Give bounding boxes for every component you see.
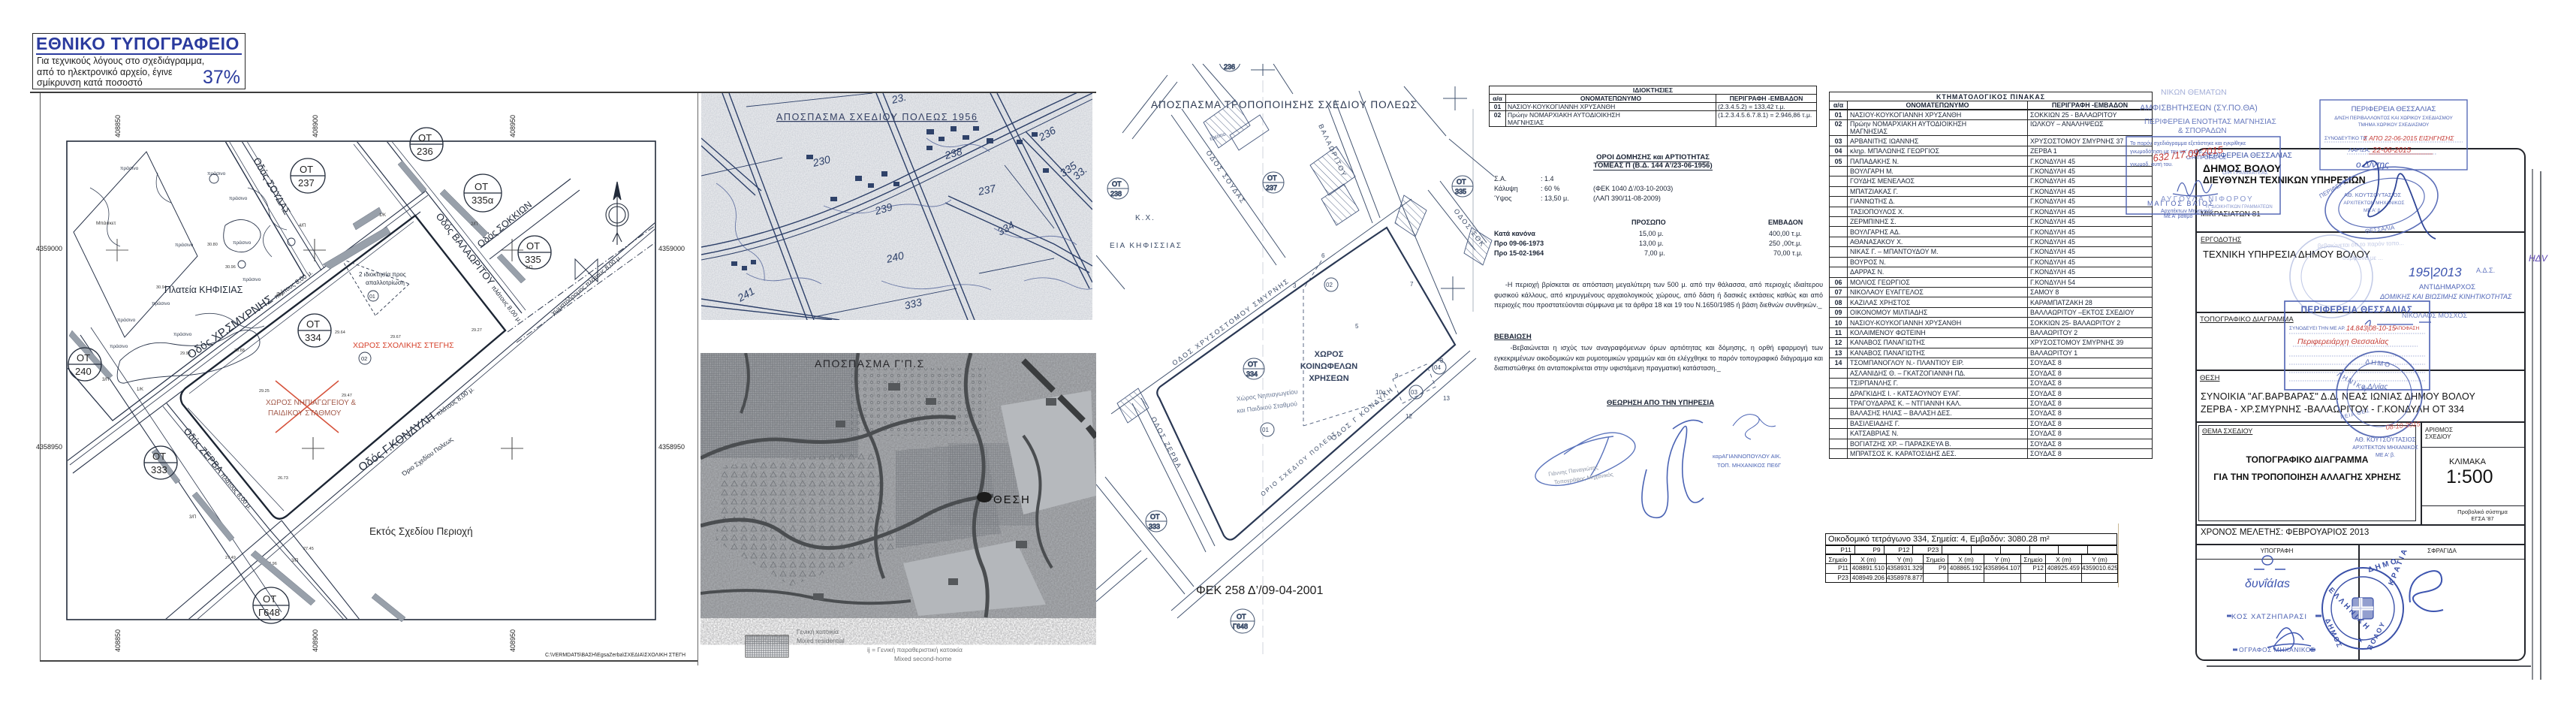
- svg-text:ΚΟΙΝΩΦΕΛΩΝ: ΚΟΙΝΩΦΕΛΩΝ: [1300, 362, 1357, 371]
- svg-text:ΘΕΣΣΑΛΙΑ: ΘΕΣΣΑΛΙΑ: [2364, 224, 2395, 235]
- svg-text:240: 240: [75, 366, 92, 377]
- svg-text:δυνΐάΙαs: δυνΐάΙαs: [2245, 578, 2290, 590]
- svg-text:ΑΥΓΟΥΛΑ ΝΙΦΟΡΟΥ: ΑΥΓΟΥΛΑ ΝΙΦΟΡΟΥ: [2161, 195, 2254, 204]
- svg-text:πράσινο: πράσινο: [152, 300, 170, 306]
- svg-text:συμφωνεί με ...: συμφωνεί με ...: [2343, 255, 2383, 261]
- svg-text:γνωμοδ. αυτή του.: γνωμοδ. αυτή του.: [2130, 162, 2173, 167]
- svg-text:ΠΑΙΔΙΚΟΥ ΣΤΑΘΜΟΥ: ΠΑΙΔΙΚΟΥ ΣΤΑΘΜΟΥ: [268, 409, 342, 418]
- svg-text:ΧΡΗΣΕΩΝ: ΧΡΗΣΕΩΝ: [1309, 374, 1348, 383]
- svg-text:195|2013: 195|2013: [2409, 265, 2462, 279]
- svg-text:ΛΑΡΙΣΑ,: ΛΑΡΙΣΑ,: [2349, 146, 2370, 153]
- svg-text:4359000: 4359000: [658, 245, 685, 252]
- svg-text:ΔΟΜΙΚΗΣ ΚΑΙ ΒΙΩΣΙΜΗΣ ΚΙΝΗΤΙΚΟΤ: ΔΟΜΙΚΗΣ ΚΑΙ ΒΙΩΣΙΜΗΣ ΚΙΝΗΤΙΚΟΤΗΤΑΣ: [2379, 293, 2512, 300]
- svg-text:ΑΠΟΣΠΑΣΜΑ ΣΧΕΔΙΟΥ ΠΟΛΕΩΣ 195: ΑΠΟΣΠΑΣΜΑ ΣΧΕΔΙΟΥ ΠΟΛΕΩΣ 1956: [776, 112, 978, 122]
- svg-text:29.27: 29.27: [472, 328, 482, 333]
- svg-text:πράσινο: πράσινο: [120, 165, 139, 171]
- svg-text:ΝΙΚΩΝ ΘΕΜΑΤΩΝ: ΝΙΚΩΝ ΘΕΜΑΤΩΝ: [2161, 88, 2227, 97]
- svg-text:3/Π: 3/Π: [291, 559, 298, 563]
- svg-text:πράσινο: πράσινο: [229, 195, 248, 201]
- svg-text:02: 02: [1326, 282, 1333, 288]
- svg-text:1/Κ: 1/Κ: [137, 388, 143, 392]
- svg-text:Γενική κατοικία: Γενική κατοικία: [797, 628, 839, 635]
- svg-text:Μπάσκετ: Μπάσκετ: [96, 220, 116, 226]
- svg-text:ΑΠΟΣΠΑΣΜΑ ΤΡΟΠΟΠΟΙΗΣΗΣ ΣΧΕΔΙΟΥ: ΑΠΟΣΠΑΣΜΑ ΤΡΟΠΟΠΟΙΗΣΗΣ ΣΧΕΔΙΟΥ ΠΟΛΕΩΣ: [1151, 99, 1418, 110]
- svg-text:ΤΜΗΜΑ ΧΩΡΙΚΟΥ ΣΧΕΔΙΑΣΜΟΥ: ΤΜΗΜΑ ΧΩΡΙΚΟΥ ΣΧΕΔΙΑΣΜΟΥ: [2358, 122, 2430, 128]
- svg-text:333: 333: [151, 464, 167, 475]
- svg-text:Εκτός Σχεδίου Περιοχή: Εκτός Σχεδίου Περιοχή: [369, 526, 473, 537]
- svg-text:333: 333: [1149, 523, 1160, 530]
- svg-text:ΑΝΤΙΔΗΜΑΡΧΟΣ: ΑΝΤΙΔΗΜΑΡΧΟΣ: [2419, 283, 2475, 291]
- svg-text:334: 334: [1246, 370, 1258, 378]
- svg-text:ΧΩΡΟΣ ΣΧΟΛΙΚΗΣ ΣΤΕΓΗΣ: ΧΩΡΟΣ ΣΧΟΛΙΚΗΣ ΣΤΕΓΗΣ: [353, 341, 454, 350]
- svg-text:ΤΟΠ. ΜΗΧΑΝΙΚΟΣ ΠΕ6Γ: ΤΟΠ. ΜΗΧΑΝΙΚΟΣ ΠΕ6Γ: [1717, 462, 1781, 469]
- svg-text:Πλατεία ΚΗΦΙΣΙΑΣ: Πλατεία ΚΗΦΙΣΙΑΣ: [164, 285, 243, 295]
- svg-text:3/Π: 3/Π: [102, 378, 109, 382]
- svg-text:2/Π: 2/Π: [471, 222, 478, 227]
- svg-text:και Παιδικού Σταθμού: και Παιδικού Σταθμού: [1237, 400, 1298, 415]
- svg-text:ΔΗΜΟ: ΔΗΜΟ: [2365, 358, 2392, 369]
- svg-text:408850: 408850: [114, 629, 122, 652]
- svg-text:30.96: 30.96: [225, 265, 236, 270]
- svg-text:2 ιδιοκτησία προς: 2 ιδιοκτησία προς: [359, 271, 406, 278]
- svg-text:4358950: 4358950: [36, 443, 62, 451]
- svg-text:ΥΓ ΔΙΟΙΚΗΤΙΚΩΝ ΓΡΑΜΜΑΤΕΩΝ: ΥΓ ΔΙΟΙΚΗΤΙΚΩΝ ΓΡΑΜΜΑΤΕΩΝ: [2205, 205, 2273, 210]
- svg-text:3/Π: 3/Π: [189, 515, 196, 520]
- svg-text:29.25: 29.25: [259, 389, 270, 394]
- svg-text:ΟΔΟΣ ΧΡΥΣΟΣΤΟΜΟΥ ΣΜΥΡΝΗΣ: ΟΔΟΣ ΧΡΥΣΟΣΤΟΜΟΥ ΣΜΥΡΝΗΣ: [1170, 277, 1291, 367]
- svg-text:408900: 408900: [312, 629, 319, 652]
- svg-text:29.47: 29.47: [342, 394, 352, 398]
- svg-text:πράσινο: πράσινο: [175, 242, 194, 248]
- svg-text:ΧΩΡΟΣ ΝΗΠΙΑΓΩΓΕΙΟΥ &: ΧΩΡΟΣ ΝΗΠΙΑΓΩΓΕΙΟΥ &: [266, 399, 356, 407]
- svg-text:Ο/Η ΓΡΑΜΜΑΤΕΑΣ: Ο/Η ΓΡΑΜΜΑΤΕΑΣ: [2222, 170, 2268, 176]
- svg-text:Γ648: Γ648: [258, 607, 280, 618]
- svg-text:ΟΤ: ΟΤ: [152, 451, 166, 462]
- svg-text:3/Π: 3/Π: [276, 293, 283, 297]
- svg-text:ΑΡΧΙΤΕΚΤΩΝ ΜΗΧΑΝΙΚΟΣ: ΑΡΧΙΤΕΚΤΩΝ ΜΗΧΑΝΙΚΟΣ: [2352, 445, 2418, 451]
- svg-text:πράσινο: πράσινο: [173, 331, 192, 337]
- svg-text:9: 9: [1395, 373, 1399, 379]
- svg-text:ΠΕΡΙΦΕΡΕΙΑ ΘΕΣΣΑΛΙΑΣ: ΠΕΡΙΦΕΡΕΙΑ ΘΕΣΣΑΛΙΑΣ: [2301, 306, 2413, 315]
- svg-text:ΗΔV: ΗΔV: [2529, 253, 2548, 264]
- svg-text:5: 5: [1355, 323, 1359, 330]
- svg-text:3: 3: [1293, 282, 1297, 289]
- svg-text:ΟΔΟΣ ΣΟΥΔΑΣ: ΟΔΟΣ ΣΟΥΔΑΣ: [1204, 149, 1247, 205]
- svg-text:29.67: 29.67: [390, 335, 401, 339]
- svg-text:632 /17.09.2015: 632 /17.09.2015: [2153, 144, 2225, 164]
- svg-text:Mixed second-home: Mixed second-home: [894, 655, 952, 662]
- svg-text:236: 236: [1224, 64, 1235, 71]
- svg-text:ij = Γενική παραθεριστική κατο: ij = Γενική παραθεριστική κατοικία: [867, 646, 963, 653]
- svg-text:Οδός ΣΟΚΚΙΩΝ: Οδός ΣΟΚΚΙΩΝ: [475, 199, 534, 249]
- svg-text:ΟΤ: ΟΤ: [418, 132, 432, 143]
- svg-text:ΦΕΚ 258 Δ’/09-04-2001: ΦΕΚ 258 Δ’/09-04-2001: [1196, 584, 1323, 597]
- svg-text:408900: 408900: [312, 115, 319, 137]
- svg-text:ΑΜΦΙΣΒΗΤΗΣΕΩΝ (ΣΥ.ΠΟ.ΘΑ): ΑΜΦΙΣΒΗΤΗΣΕΩΝ (ΣΥ.ΠΟ.ΘΑ): [2140, 104, 2258, 113]
- svg-text:ΟΤ: ΟΤ: [1112, 180, 1122, 188]
- svg-text:ΣΥΝΟΔΕΥΕΙ ΤΗΝ ΜΕ ΑΡ.: ΣΥΝΟΔΕΥΕΙ ΤΗΝ ΜΕ ΑΡ.: [2289, 326, 2346, 331]
- svg-text:ΠΕΡΙΦΕΡΕΙΑ ΘΕΣΣΑΛΙΑΣ: ΠΕΡΙΦΕΡΕΙΑ ΘΕΣΣΑΛΙΑΣ: [2352, 105, 2436, 113]
- svg-text:Με Α' βαθμό: Με Α' βαθμό: [2164, 213, 2192, 219]
- svg-text:6: 6: [1321, 252, 1325, 259]
- svg-text:334: 334: [305, 332, 321, 343]
- svg-text:ΘΕΣΗ: ΘΕΣΗ: [993, 493, 1031, 506]
- svg-text:01: 01: [1262, 427, 1269, 433]
- svg-text:ΟΡΙΟ ΣΧΕΔΙΟΥ ΠΟΛΕΩΣ: ΟΡΙΟ ΣΧΕΔΙΟΥ ΠΟΛΕΩΣ: [1260, 430, 1339, 498]
- svg-text:ΟΤ: ΟΤ: [300, 164, 313, 175]
- svg-text:22-06-2015: 22-06-2015: [2372, 146, 2412, 155]
- svg-text:ΑΠΟΦΑΣΗ: ΑΠΟΦΑΣΗ: [2395, 326, 2419, 331]
- svg-text:ΟΤ: ΟΤ: [1248, 361, 1258, 368]
- svg-text:ΕΙΑ ΚΗΦΙΣΣΙΑΣ: ΕΙΑ ΚΗΦΙΣΣΙΑΣ: [1110, 242, 1183, 250]
- svg-text:ΟΔΟΣ Γ ΚΟΝΔΥΛΗ: ΟΔΟΣ Γ ΚΟΝΔΥΛΗ: [1330, 385, 1395, 442]
- svg-text:ΟΤ: ΟΤ: [1150, 513, 1160, 520]
- svg-text:ΜΕ Α' β.: ΜΕ Α' β.: [2376, 453, 2395, 458]
- svg-text:238: 238: [1110, 190, 1122, 198]
- svg-text:ΟΤ: ΟΤ: [306, 318, 320, 330]
- svg-text:ΟΓΡΑΦΟΣ ΜΗΧΑΝΙΚΟΣ: ΟΓΡΑΦΟΣ ΜΗΧΑΝΙΚΟΣ: [2239, 646, 2315, 653]
- svg-text:ΟΤ: ΟΤ: [263, 593, 276, 605]
- svg-text:ΟΤ: ΟΤ: [1457, 178, 1466, 186]
- svg-text:πράσινο: πράσινο: [243, 276, 261, 282]
- svg-text:408950: 408950: [509, 629, 517, 652]
- svg-text:καρΑΓΙΑΝΝΟΠΟΥΛΟΥ ΑΙΚ.: καρΑΓΙΑΝΝΟΠΟΥΛΟΥ ΑΙΚ.: [1713, 453, 1782, 460]
- svg-text:ΑΠΟΣΠΑΣΜΑ Γ'Π.Σ: ΑΠΟΣΠΑΣΜΑ Γ'Π.Σ: [815, 358, 925, 370]
- svg-text:01: 01: [369, 294, 375, 300]
- svg-text:πράσινο: πράσινο: [117, 317, 136, 323]
- svg-text:30.80: 30.80: [207, 243, 218, 247]
- svg-text:ΟΤ: ΟΤ: [526, 240, 540, 252]
- svg-text:ΑΘ. ΚΟΥΤΣΟΥΤΑΣΙΟΣ: ΑΘ. ΚΟΥΤΣΟΥΤΑΣΙΟΣ: [2355, 436, 2415, 443]
- svg-text:ΟΤ: ΟΤ: [1237, 613, 1246, 620]
- svg-text:ΟΤ: ΟΤ: [77, 352, 90, 364]
- svg-text:236: 236: [417, 146, 433, 157]
- svg-text:Το παρόν σχεδιάγραμμα εξετάστη: Το παρόν σχεδιάγραμμα εξετάστηκε και εγκ…: [2130, 140, 2246, 146]
- svg-text:1/Κ: 1/Κ: [379, 213, 386, 218]
- svg-text:237: 237: [1266, 184, 1277, 192]
- svg-text:237: 237: [298, 177, 315, 189]
- svg-text:& ΣΠΟΡΑΔΩΝ: & ΣΠΟΡΑΔΩΝ: [2178, 127, 2227, 135]
- svg-text:ΧΩΡΟΣ: ΧΩΡΟΣ: [1315, 350, 1344, 359]
- svg-text:29.64: 29.64: [335, 330, 345, 335]
- svg-text:πράσινο: πράσινο: [233, 240, 252, 246]
- svg-text:26.73: 26.73: [278, 476, 288, 481]
- svg-text:πράσινο: πράσινο: [207, 170, 226, 176]
- svg-text:ο Δ/νίας: ο Δ/νίας: [2361, 382, 2388, 391]
- svg-text:πράσινο: πράσινο: [110, 343, 128, 349]
- svg-text:335α: 335α: [472, 195, 494, 206]
- svg-text:13: 13: [1443, 395, 1450, 402]
- svg-text:χωματόδρομος πλάτους 8,00 μ.: χωματόδρομος πλάτους 8,00 μ.: [550, 253, 623, 316]
- svg-text:335: 335: [525, 254, 541, 265]
- svg-text:408950: 408950: [509, 115, 517, 137]
- svg-text:29.88: 29.88: [234, 348, 245, 353]
- svg-text:14.843|08-10-15: 14.843|08-10-15: [2346, 324, 2397, 332]
- svg-text:Οδός ΣΟΥΔΑΣ: Οδός ΣΟΥΔΑΣ: [251, 155, 293, 216]
- svg-text:απαλλοτρίωση: απαλλοτρίωση: [366, 279, 405, 286]
- svg-text:4358950: 4358950: [658, 443, 685, 451]
- svg-text:408850: 408850: [114, 115, 122, 137]
- svg-text:Περιφερειάρχη Θεσσαλίας: Περιφερειάρχη Θεσσαλίας: [2297, 337, 2389, 346]
- svg-text:ΚΟΣ ΧΑΤΖΗΠΑΡΑΣΙ: ΚΟΣ ΧΑΤΖΗΠΑΡΑΣΙ: [2231, 613, 2307, 621]
- svg-text:ΟΔΟΣ ΖΕΡΒΑ: ΟΔΟΣ ΖΕΡΒΑ: [1149, 415, 1183, 470]
- svg-text:★: ★: [2358, 637, 2364, 644]
- svg-text:ΟΤ: ΟΤ: [1267, 174, 1277, 182]
- svg-text:ΣΥΝΟΔΕΥΤΙΚΟ ΤΗ: ΣΥΝΟΔΕΥΤΙΚΟ ΤΗ: [2324, 136, 2367, 141]
- svg-text:04: 04: [1434, 364, 1441, 371]
- svg-text:27.45: 27.45: [303, 547, 314, 551]
- svg-text:Γ648: Γ648: [1233, 623, 1248, 630]
- svg-text:Mixed residential: Mixed residential: [797, 637, 845, 644]
- svg-text:ΡΕΙΑ ΘΕΣ: ΡΕΙΑ ΘΕΣ: [2340, 408, 2370, 420]
- svg-text:335: 335: [1455, 188, 1466, 195]
- svg-text:7: 7: [1410, 281, 1414, 288]
- svg-text:ΠΕΡΙΦΕΡΕΙΑ ΕΝΟΤΗΤΑΣ ΜΑΓΝΗΣΙΑΣ: ΠΕΡΙΦΕΡΕΙΑ ΕΝΟΤΗΤΑΣ ΜΑΓΝΗΣΙΑΣ: [2144, 118, 2276, 126]
- svg-text:2/Π: 2/Π: [526, 266, 532, 270]
- svg-text:Σ ΑΠΟ 22-06-2015 ΕΙΣΗΓΗΣΗΣ: Σ ΑΠΟ 22-06-2015 ΕΙΣΗΓΗΣΗΣ: [2363, 134, 2454, 142]
- svg-text:Α.Δ.Σ.: Α.Δ.Σ.: [2476, 267, 2495, 274]
- svg-text:Κ.Χ.: Κ.Χ.: [1135, 214, 1155, 222]
- svg-text:4/Π: 4/Π: [299, 224, 306, 228]
- svg-text:12: 12: [1406, 413, 1412, 420]
- svg-text:03: 03: [1411, 389, 1418, 396]
- svg-text:02: 02: [361, 355, 367, 362]
- svg-text:ΟΤ: ΟΤ: [475, 181, 488, 192]
- svg-text:27.49: 27.49: [225, 556, 236, 560]
- svg-text:4359000: 4359000: [36, 245, 62, 252]
- svg-text:Δ/ΝΣΗ ΠΕΡΙΒΑΛΛΟΝΤΟΣ ΚΑΙ ΧΩΡΙΚΟ: Δ/ΝΣΗ ΠΕΡΙΒΑΛΛΟΝΤΟΣ ΚΑΙ ΧΩΡΙΚΟΥ ΣΧΕΔΙΑΣΜ…: [2334, 116, 2453, 121]
